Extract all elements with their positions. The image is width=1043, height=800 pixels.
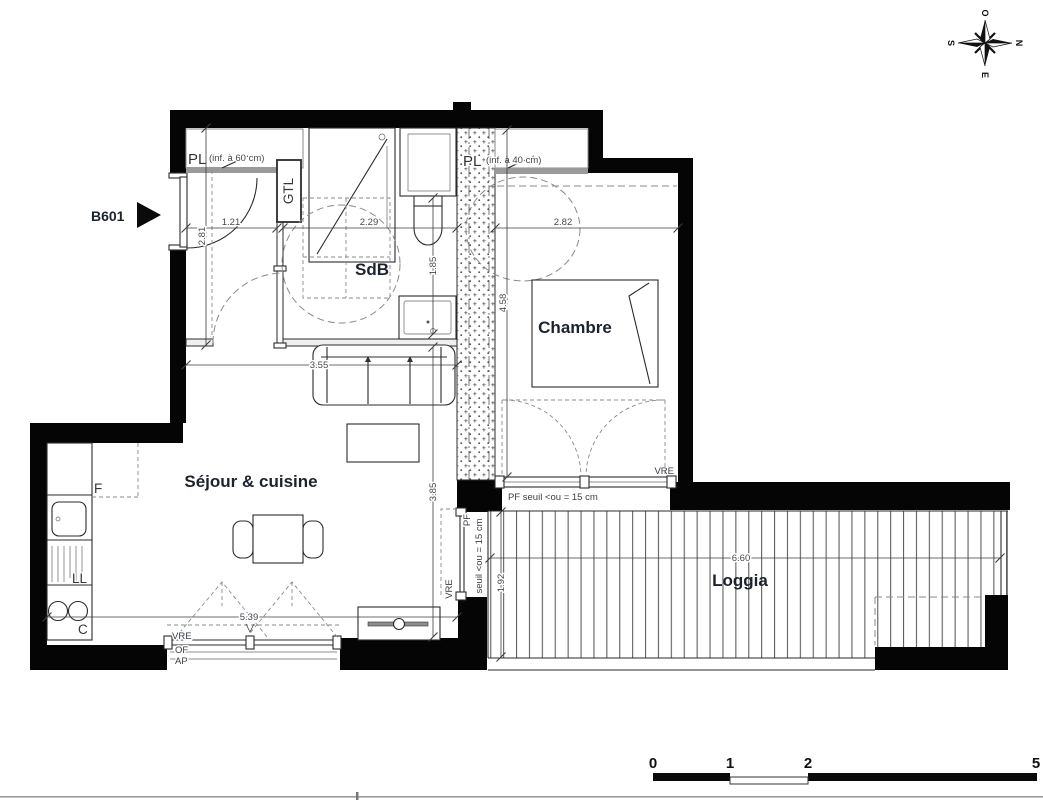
scale-0: 0 (649, 755, 657, 772)
unit-label: B601 (91, 208, 125, 224)
cooktop-label: C (78, 622, 88, 637)
scale-5: 5 (1032, 755, 1040, 772)
dim-bathroom-depth: 1.85 (428, 257, 439, 276)
compass-west-label: O (980, 9, 990, 16)
compass-rose: O N E S (946, 9, 1024, 78)
dining-chair (303, 521, 323, 558)
water-heater (400, 128, 456, 196)
dining-table (233, 515, 323, 563)
floor-plan-svg: B601 PL (inf. à 60 cm) GTL (0, 0, 1043, 800)
dim-loggia-depth: 1.92 (496, 574, 507, 593)
closet-bedroom-label: PL (463, 153, 481, 170)
dim-hall-width: 1.21 (222, 217, 241, 228)
scale-bar: 0 1 2 5 (649, 755, 1040, 784)
kitchen-sink (52, 502, 86, 536)
room-label-bathroom: SdB (355, 260, 389, 279)
coffee-table (347, 424, 419, 462)
room-label-bedroom: Chambre (538, 318, 612, 337)
window-living-of-label: OF (175, 645, 188, 656)
toilet (414, 196, 442, 245)
dim-living-depth: 3.85 (428, 483, 439, 502)
kitchen-block (47, 443, 138, 640)
sofa (313, 345, 455, 405)
insulated-wall (457, 128, 495, 480)
dim-loggia-width: 6.60 (732, 553, 751, 564)
dim-living-width: 5.39 (240, 612, 259, 623)
room-label-living: Séjour & cuisine (184, 472, 317, 491)
dim-bedroom-depth: 4.58 (498, 294, 509, 313)
loggia: Loggia (488, 511, 1008, 670)
hall-door-swing (213, 273, 283, 343)
scale-2: 2 (804, 755, 812, 772)
window-loggia-vre-label: VRE (444, 579, 455, 599)
dim-hall-depth: 2.81 (197, 227, 208, 246)
dim-living-width-top: 3.55 (310, 360, 329, 371)
entry-door-leaf (180, 177, 187, 247)
window-bedroom-pf-label: PF seuil <ou = 15 cm (508, 492, 598, 503)
bathroom: SdB (282, 128, 456, 339)
compass-south-label: S (946, 40, 956, 46)
window-bedroom (495, 400, 676, 488)
gtl-label: GTL (281, 177, 296, 204)
washer-label: LL (72, 571, 88, 586)
washbasin (399, 296, 456, 339)
living-kitchen: Séjour & cuisine F LL C (47, 345, 485, 667)
compass-north-label: N (1014, 40, 1024, 47)
pf-loggia-label-1: PF (462, 514, 473, 526)
titleblock-edge (0, 792, 1043, 800)
window-bedroom-vre-label: VRE (654, 466, 674, 477)
dim-bedroom-width: 2.82 (554, 217, 573, 228)
compass-east-label: E (980, 72, 990, 78)
window-living-ap-label: AP (175, 656, 188, 667)
tv-bench (358, 607, 440, 640)
fridge-label: F (94, 481, 102, 496)
closet-bedroom-note: (inf. à 40 cm) (486, 155, 541, 166)
closet-hall-label: PL (188, 151, 206, 168)
sliding-door-bathroom (277, 222, 283, 348)
entry-arrow-icon (137, 202, 161, 228)
scale-1: 1 (726, 755, 734, 772)
dim-bathroom-width: 2.29 (360, 217, 379, 228)
closet-hall-note: (inf. à 60 cm) (209, 153, 264, 164)
floor-plan-page: B601 PL (inf. à 60 cm) GTL (0, 0, 1043, 800)
window-living-vre-label: VRE (172, 631, 192, 642)
pf-loggia-label-2: seuil <ou = 15 cm (474, 518, 485, 593)
room-label-loggia: Loggia (712, 571, 768, 590)
dining-chair (233, 521, 253, 558)
